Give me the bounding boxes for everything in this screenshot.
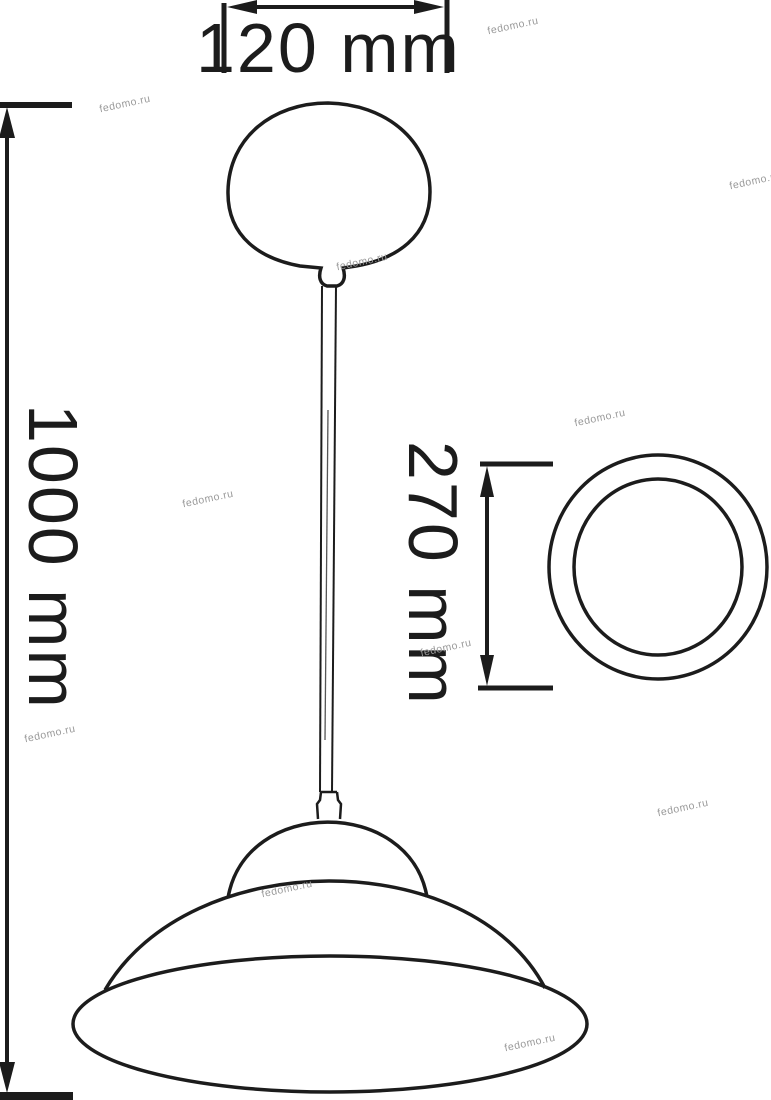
top-view-outer-circle [549,455,767,679]
technical-drawing [0,0,771,1100]
shade-neck-right [337,792,341,819]
cord-right-edge [332,286,336,792]
height-dim-arrow-up [0,107,15,138]
canopy-outline [228,103,430,286]
shade-upper-surface-arc [105,881,545,990]
height-dimension-label: 1000 mm [18,404,88,710]
shade-dimension-lines [478,464,553,688]
shade-top-view [549,455,767,679]
shade-rim-ellipse [73,956,587,1092]
height-dim-arrow-down [0,1062,15,1093]
lamp-dimension-diagram: 120 mm 1000 mm 270 mm fedomo.rufedomo.ru… [0,0,771,1100]
top-view-inner-circle [574,479,742,655]
shade-neck-left [317,792,321,819]
cord-left-edge [320,286,322,792]
shade-dim-arrow-down [480,655,494,686]
cord-inner-line [325,410,328,740]
width-dimension-label: 120 mm [196,13,461,83]
shade-dim-arrow-up [480,466,494,497]
suspension-cord [320,286,336,792]
shade-dimension-label: 270 mm [398,441,468,706]
